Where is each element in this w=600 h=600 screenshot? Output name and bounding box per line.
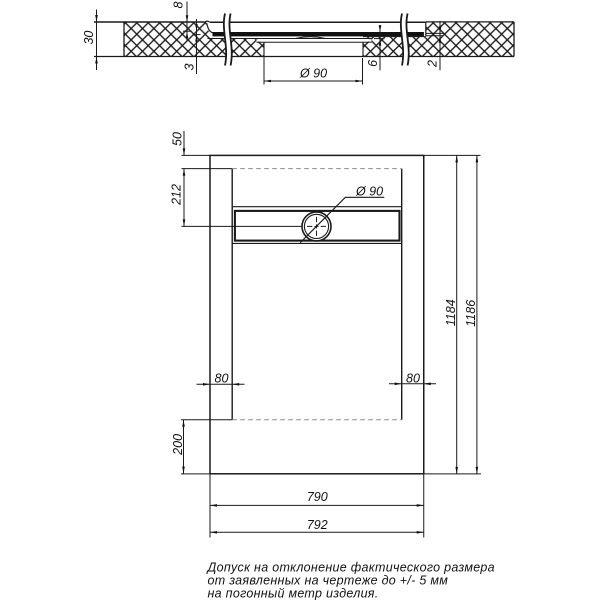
svg-text:на погонный метр изделия.: на погонный метр изделия. <box>208 586 379 600</box>
svg-text:792: 792 <box>307 518 328 532</box>
svg-text:50: 50 <box>171 132 185 146</box>
svg-text:Ø 90: Ø 90 <box>355 184 383 198</box>
svg-text:80: 80 <box>406 371 420 385</box>
svg-text:80: 80 <box>215 371 229 385</box>
svg-text:8: 8 <box>172 1 186 8</box>
svg-text:1186: 1186 <box>464 300 478 327</box>
svg-text:2: 2 <box>425 60 439 68</box>
svg-text:Ø 90: Ø 90 <box>299 67 327 81</box>
svg-text:1184: 1184 <box>444 299 458 326</box>
svg-text:200: 200 <box>171 434 185 456</box>
svg-text:Допуск на отклонение фактическ: Допуск на отклонение фактического размер… <box>206 560 495 574</box>
svg-text:212: 212 <box>170 184 184 206</box>
svg-text:3: 3 <box>183 63 197 70</box>
svg-text:790: 790 <box>307 490 328 504</box>
svg-text:6: 6 <box>366 60 380 67</box>
svg-text:30: 30 <box>82 31 96 45</box>
svg-text:от заявленных на чертеже до +/: от заявленных на чертеже до +/- 5 мм <box>208 573 449 587</box>
